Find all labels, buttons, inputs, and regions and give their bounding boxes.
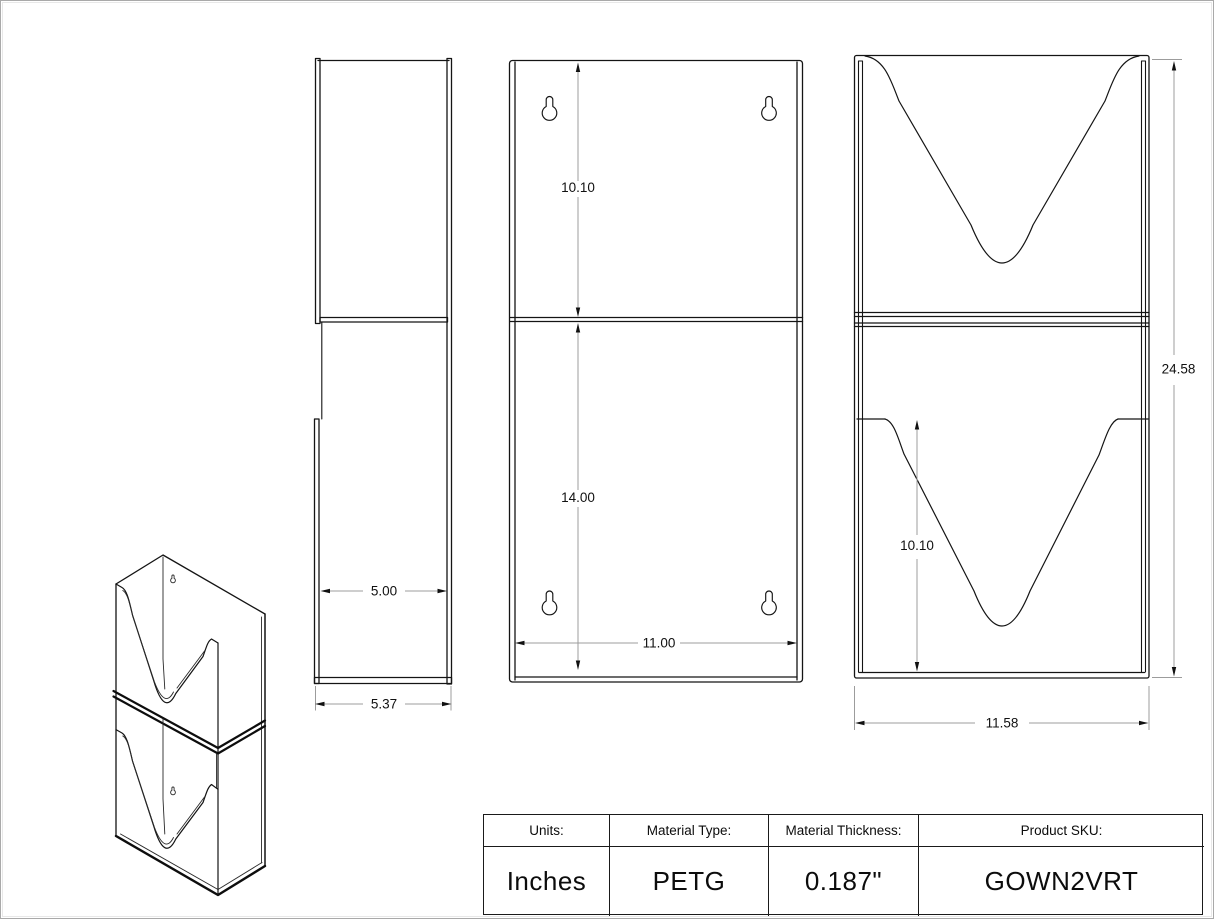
product-sku-value: GOWN2VRT	[919, 847, 1204, 916]
dim-front-overall-height: 24.58	[1162, 362, 1196, 377]
dim-side-inner-depth: 5.00	[371, 584, 397, 599]
product-sku-header: Product SKU:	[919, 815, 1204, 847]
material-thickness-header: Material Thickness:	[769, 815, 919, 847]
keyhole-icon	[171, 787, 176, 795]
units-value: Inches	[484, 847, 610, 916]
side-view: 5.00 5.37	[315, 59, 452, 712]
dim-front-pocket-height: 10.10	[900, 538, 934, 553]
dim-back-lower-height: 14.00	[561, 490, 595, 505]
front-pockets-view: 10.10 24.58 11.58	[855, 56, 1196, 731]
keyhole-icon	[171, 575, 176, 583]
dim-back-inner-width: 11.00	[643, 636, 676, 651]
keyhole-icon	[762, 97, 777, 121]
cad-drawing: 5.00 5.37	[1, 1, 1214, 919]
material-type-header: Material Type:	[610, 815, 769, 847]
keyhole-icon	[762, 591, 777, 615]
units-header: Units:	[484, 815, 610, 847]
isometric-view	[114, 555, 266, 895]
dim-back-upper-height: 10.10	[561, 180, 595, 195]
title-block: Units: Material Type: Material Thickness…	[483, 814, 1203, 915]
dim-front-overall-width: 11.58	[986, 716, 1019, 731]
dim-side-outer-depth: 5.37	[371, 697, 397, 712]
keyhole-icon	[542, 591, 557, 615]
keyhole-icon	[542, 97, 557, 121]
back-panel-view: 10.10 14.00 11.00	[510, 61, 803, 683]
material-type-value: PETG	[610, 847, 769, 916]
drawing-sheet: 5.00 5.37	[0, 0, 1214, 919]
material-thickness-value: 0.187"	[769, 847, 919, 916]
